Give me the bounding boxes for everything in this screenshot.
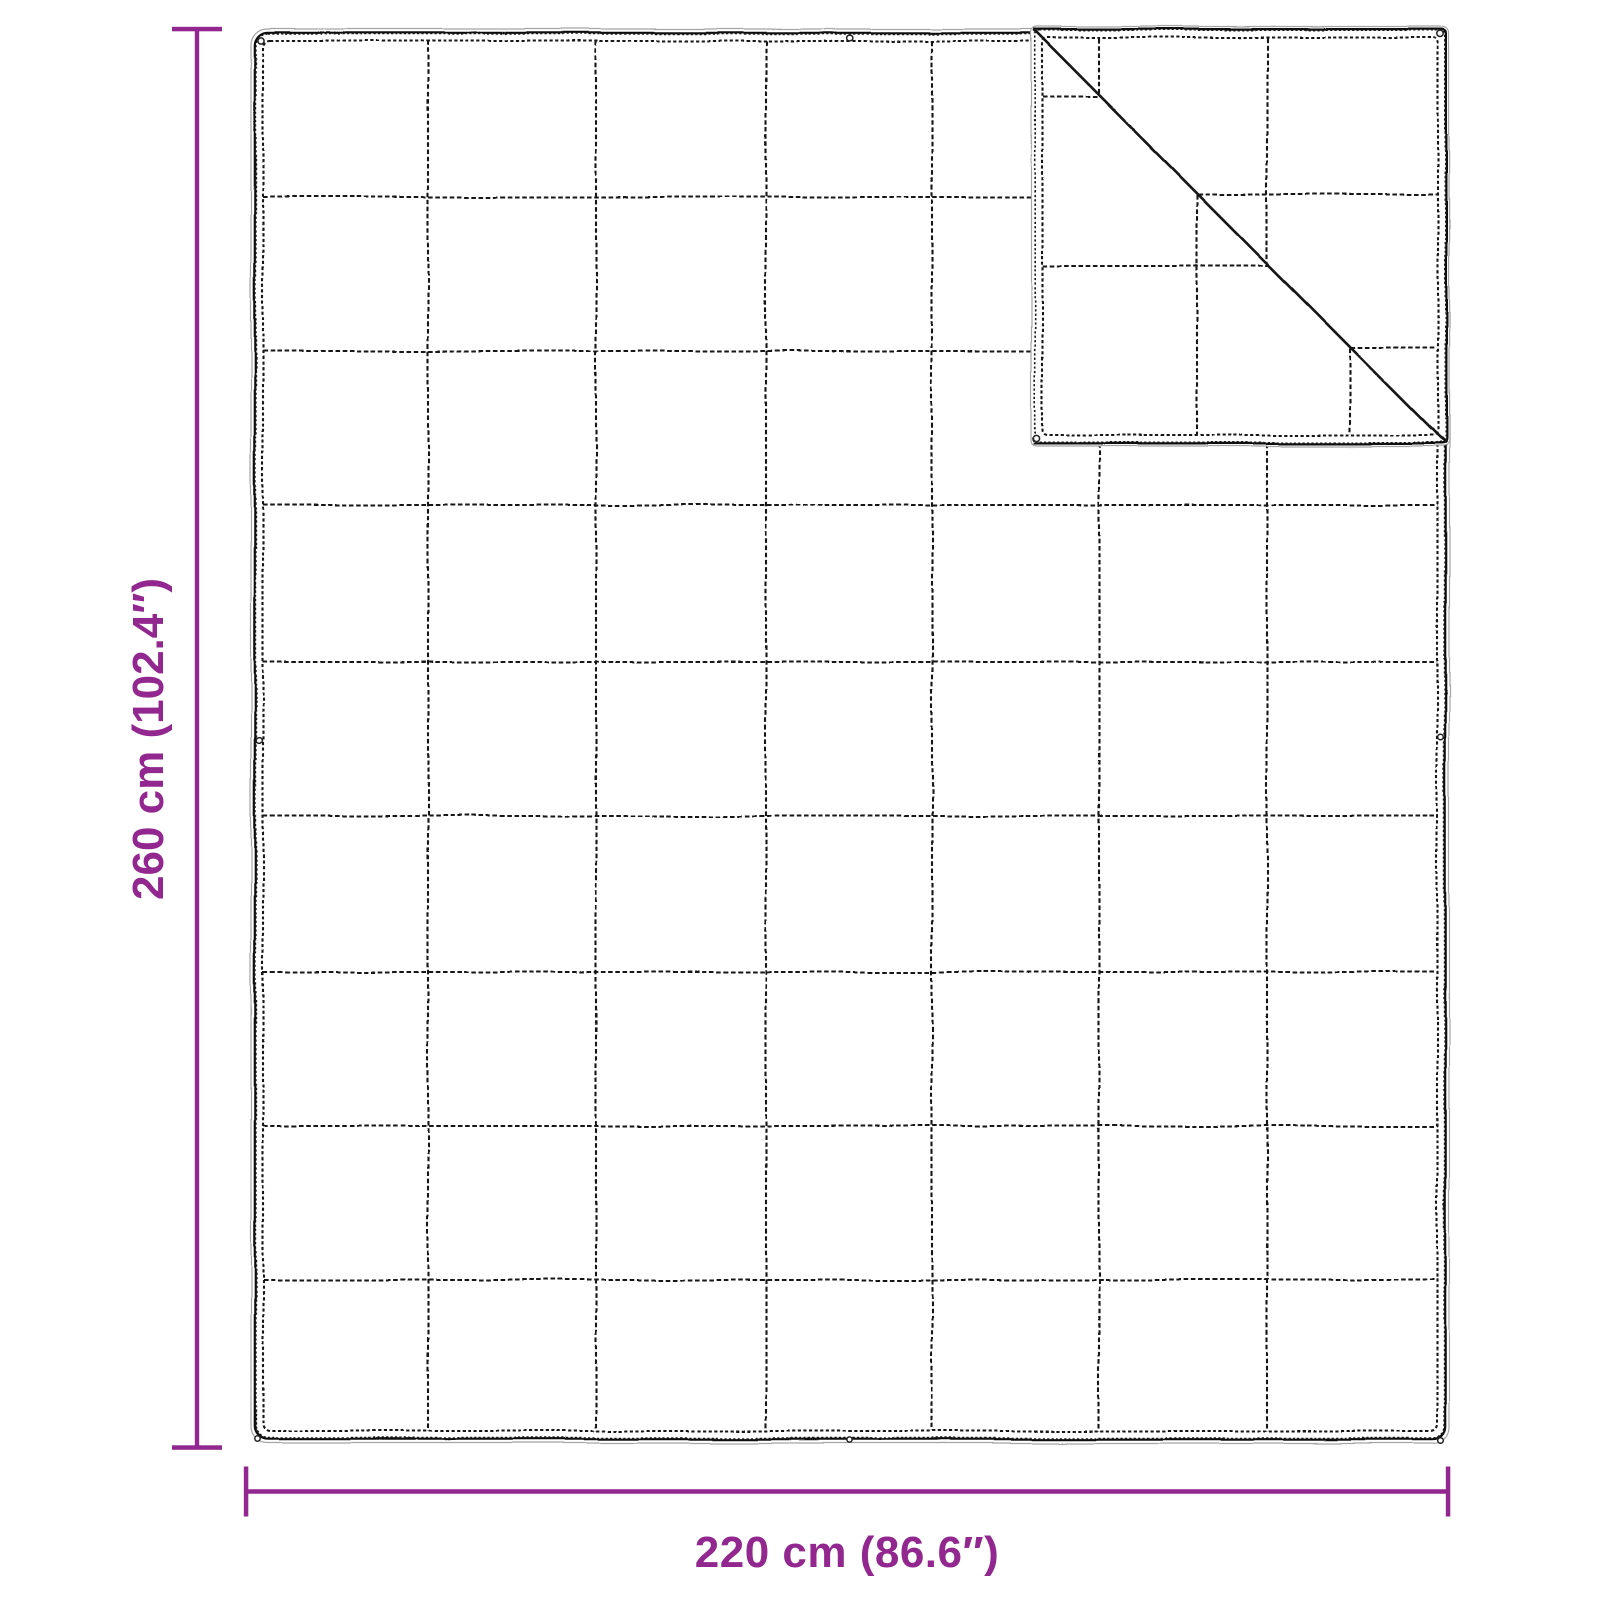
svg-text:260 cm (102.4″): 260 cm (102.4″) (124, 578, 173, 900)
svg-text:220 cm (86.6″): 220 cm (86.6″) (695, 1528, 999, 1577)
